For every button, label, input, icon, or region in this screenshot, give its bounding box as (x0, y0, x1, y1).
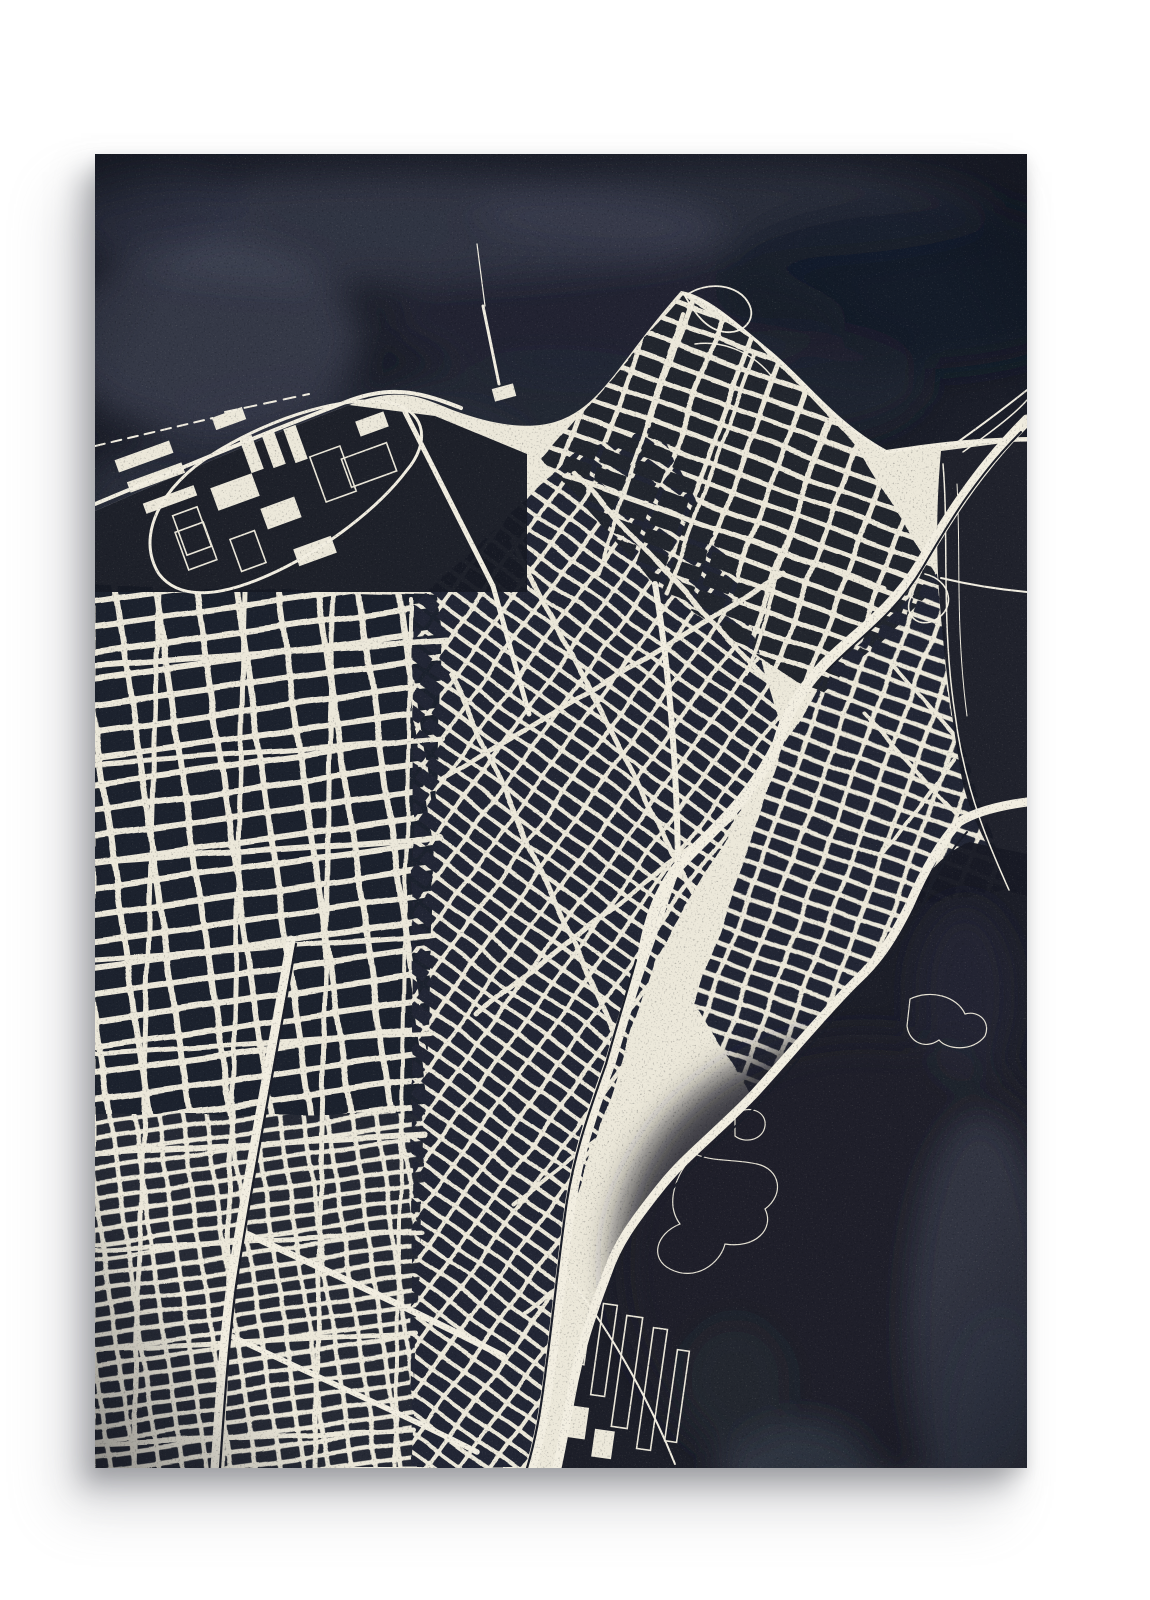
city-map-artwork (95, 154, 1027, 1468)
map-poster-canvas (95, 154, 1027, 1468)
edge-vignette (95, 154, 1027, 1468)
wall-background (0, 0, 1150, 1600)
